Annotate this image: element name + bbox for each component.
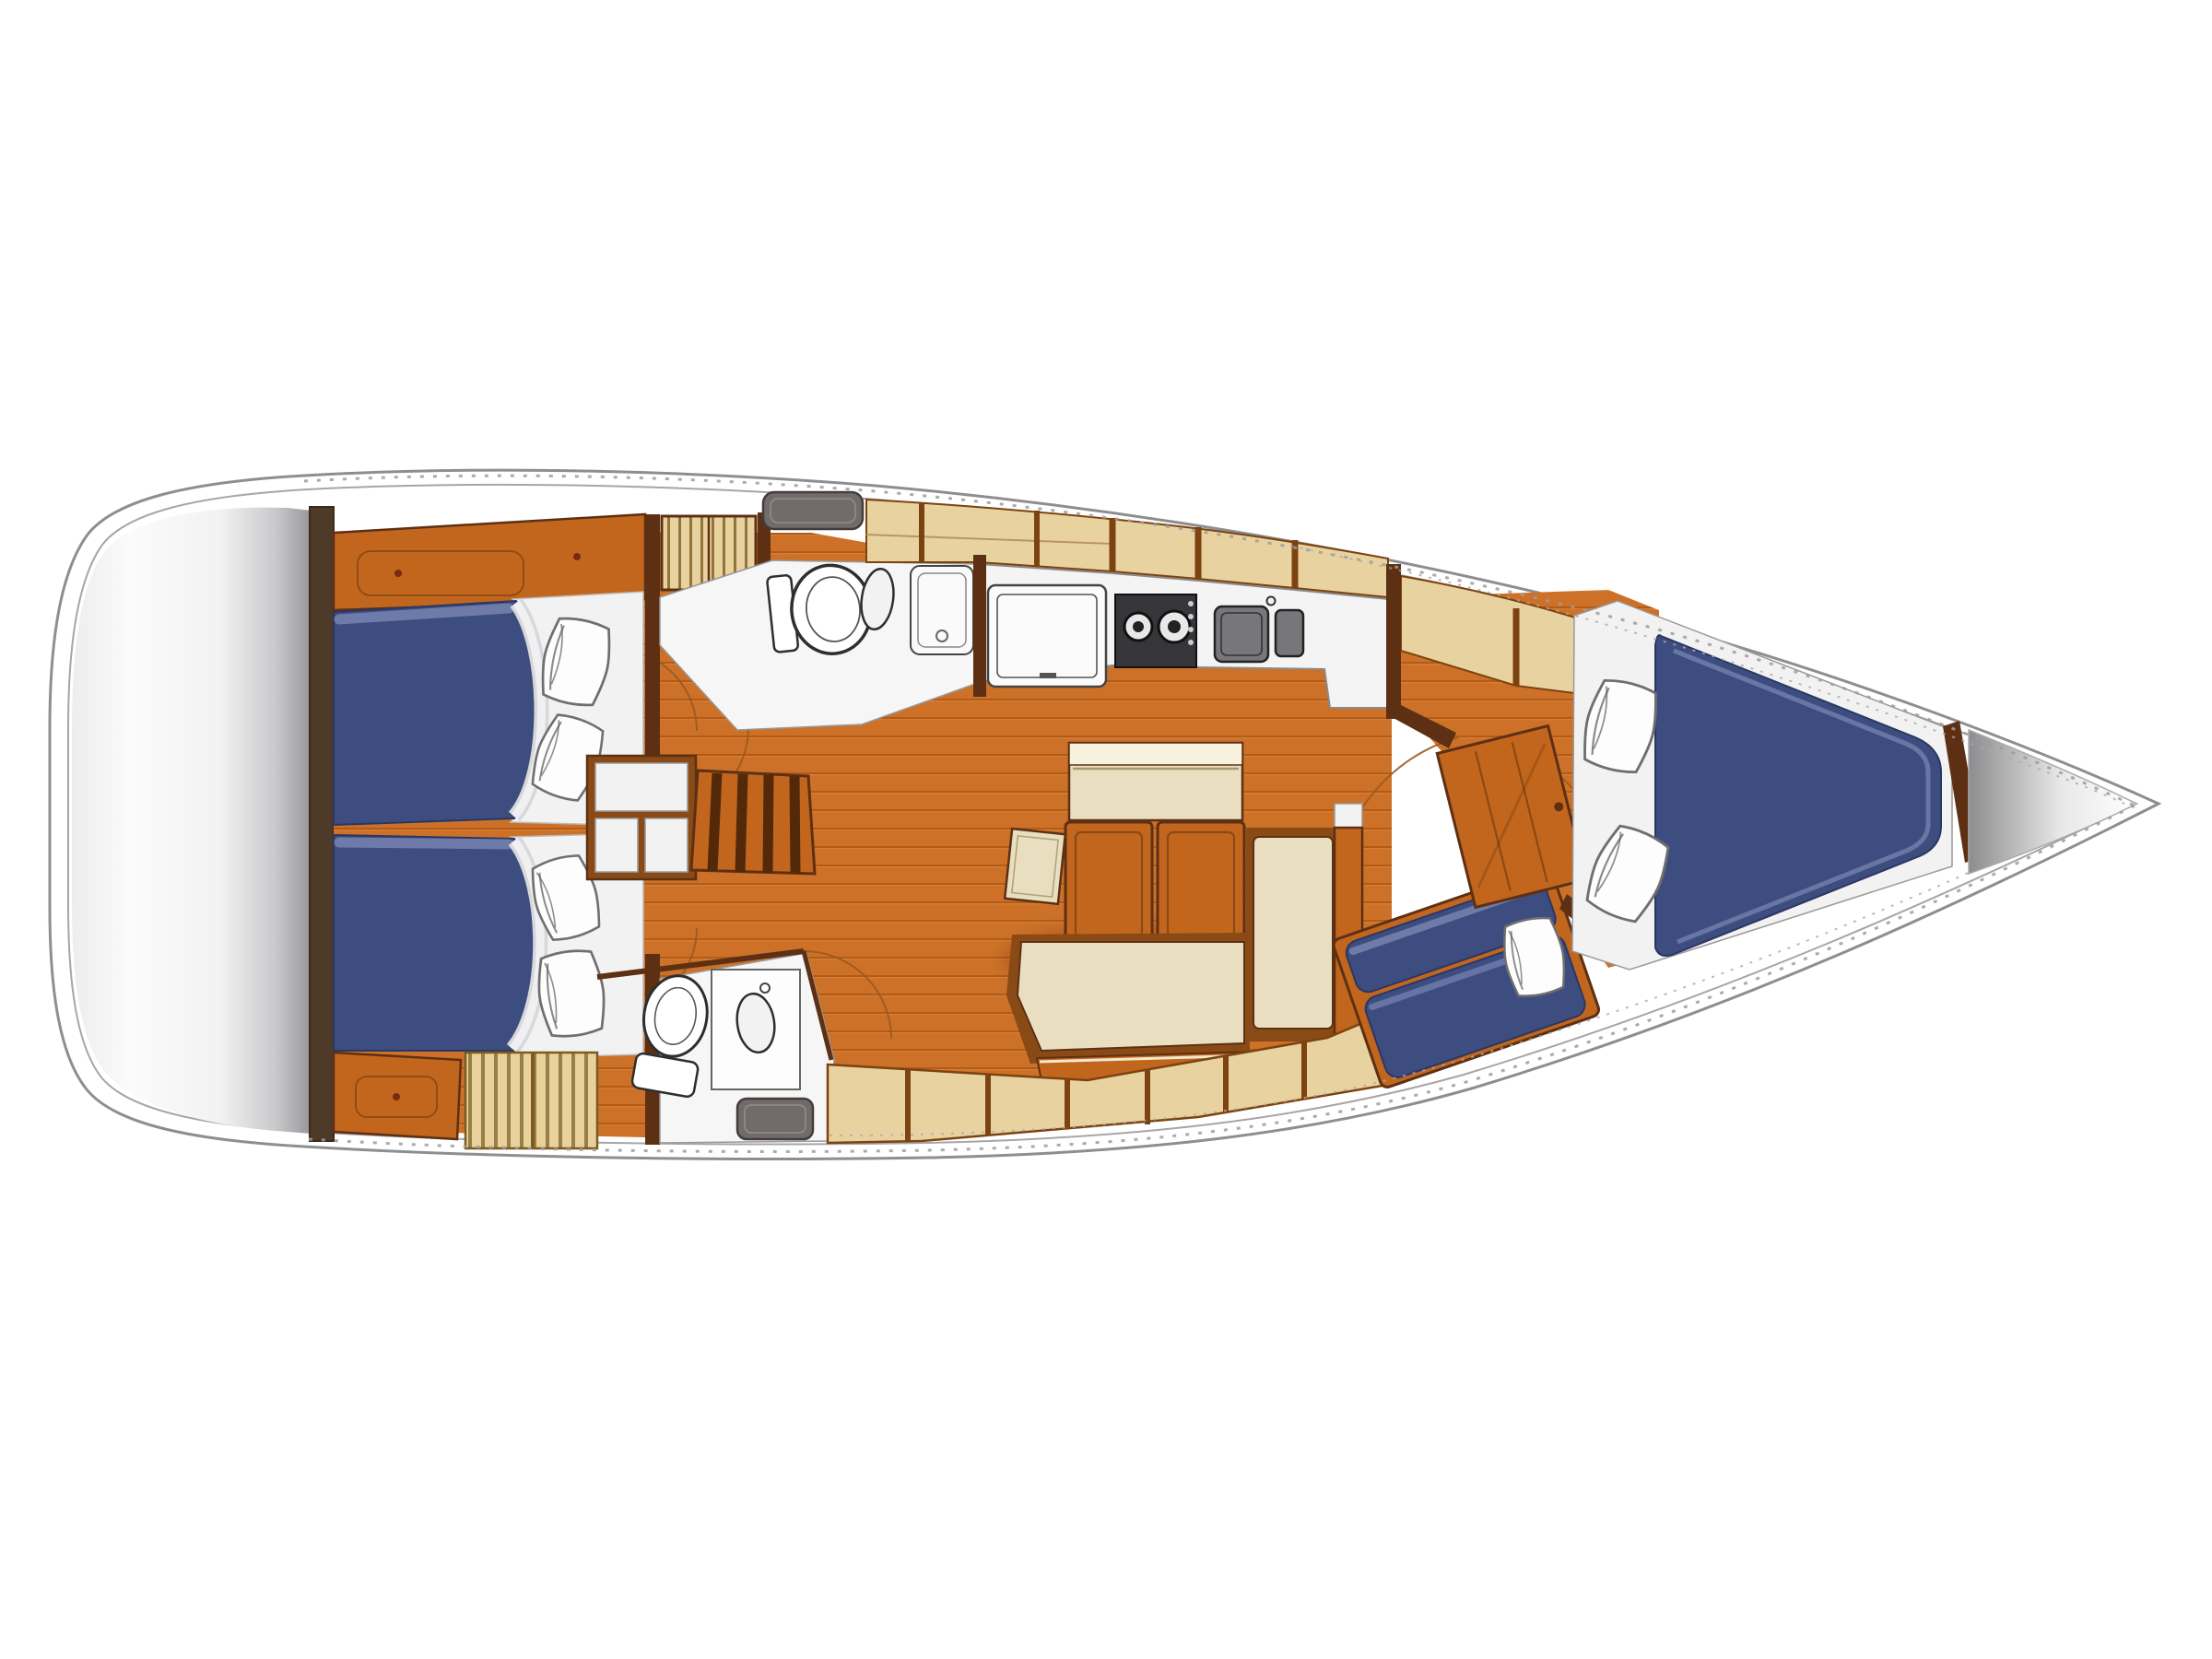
floor-plan-canvas xyxy=(0,0,2212,1659)
nav-desk-panel xyxy=(645,818,688,872)
l-settee-back xyxy=(1253,837,1333,1029)
table-leaf-edge xyxy=(1069,743,1242,765)
platform-surface xyxy=(72,508,312,1134)
stove-knob xyxy=(1188,601,1194,606)
galley-wall xyxy=(973,555,986,697)
settee-arm-cap xyxy=(1335,804,1362,828)
wall-port xyxy=(645,514,660,761)
transom-bulkhead xyxy=(310,507,334,1141)
stair-tread xyxy=(794,776,795,874)
shelf-dot xyxy=(573,553,581,560)
mast-stool xyxy=(1005,829,1065,904)
stair-tread xyxy=(740,774,743,872)
nav-desk-panel xyxy=(595,818,638,872)
companionway-hatch xyxy=(763,492,863,529)
burner-cap xyxy=(1168,620,1181,633)
nav-station xyxy=(587,756,696,879)
burner-cap xyxy=(1133,621,1144,632)
folding-chair xyxy=(1158,822,1244,947)
stair-tread xyxy=(712,773,717,871)
shelf-dot xyxy=(393,1093,400,1100)
stove-knob xyxy=(1188,627,1194,632)
stove-knob xyxy=(1188,614,1194,619)
swim-platform xyxy=(72,507,334,1141)
fridge-lid xyxy=(988,585,1106,687)
folding-chair xyxy=(1065,822,1152,947)
boat-floor-plan xyxy=(0,0,2212,1659)
l-settee-seat xyxy=(1018,942,1244,1051)
aft-cabin-starboard xyxy=(334,833,643,1148)
fridge-latch xyxy=(1040,673,1056,678)
stair-tread xyxy=(768,775,769,873)
nav-desk-top xyxy=(595,763,688,811)
companionway-stairs xyxy=(691,771,815,874)
berth-highlight xyxy=(339,842,509,844)
sink-small xyxy=(1276,610,1303,656)
double-berth xyxy=(334,601,542,825)
stove-knob xyxy=(1188,640,1194,645)
forward-bulkhead xyxy=(1386,564,1401,719)
shelf-dot xyxy=(394,570,402,577)
double-berth xyxy=(334,835,541,1051)
